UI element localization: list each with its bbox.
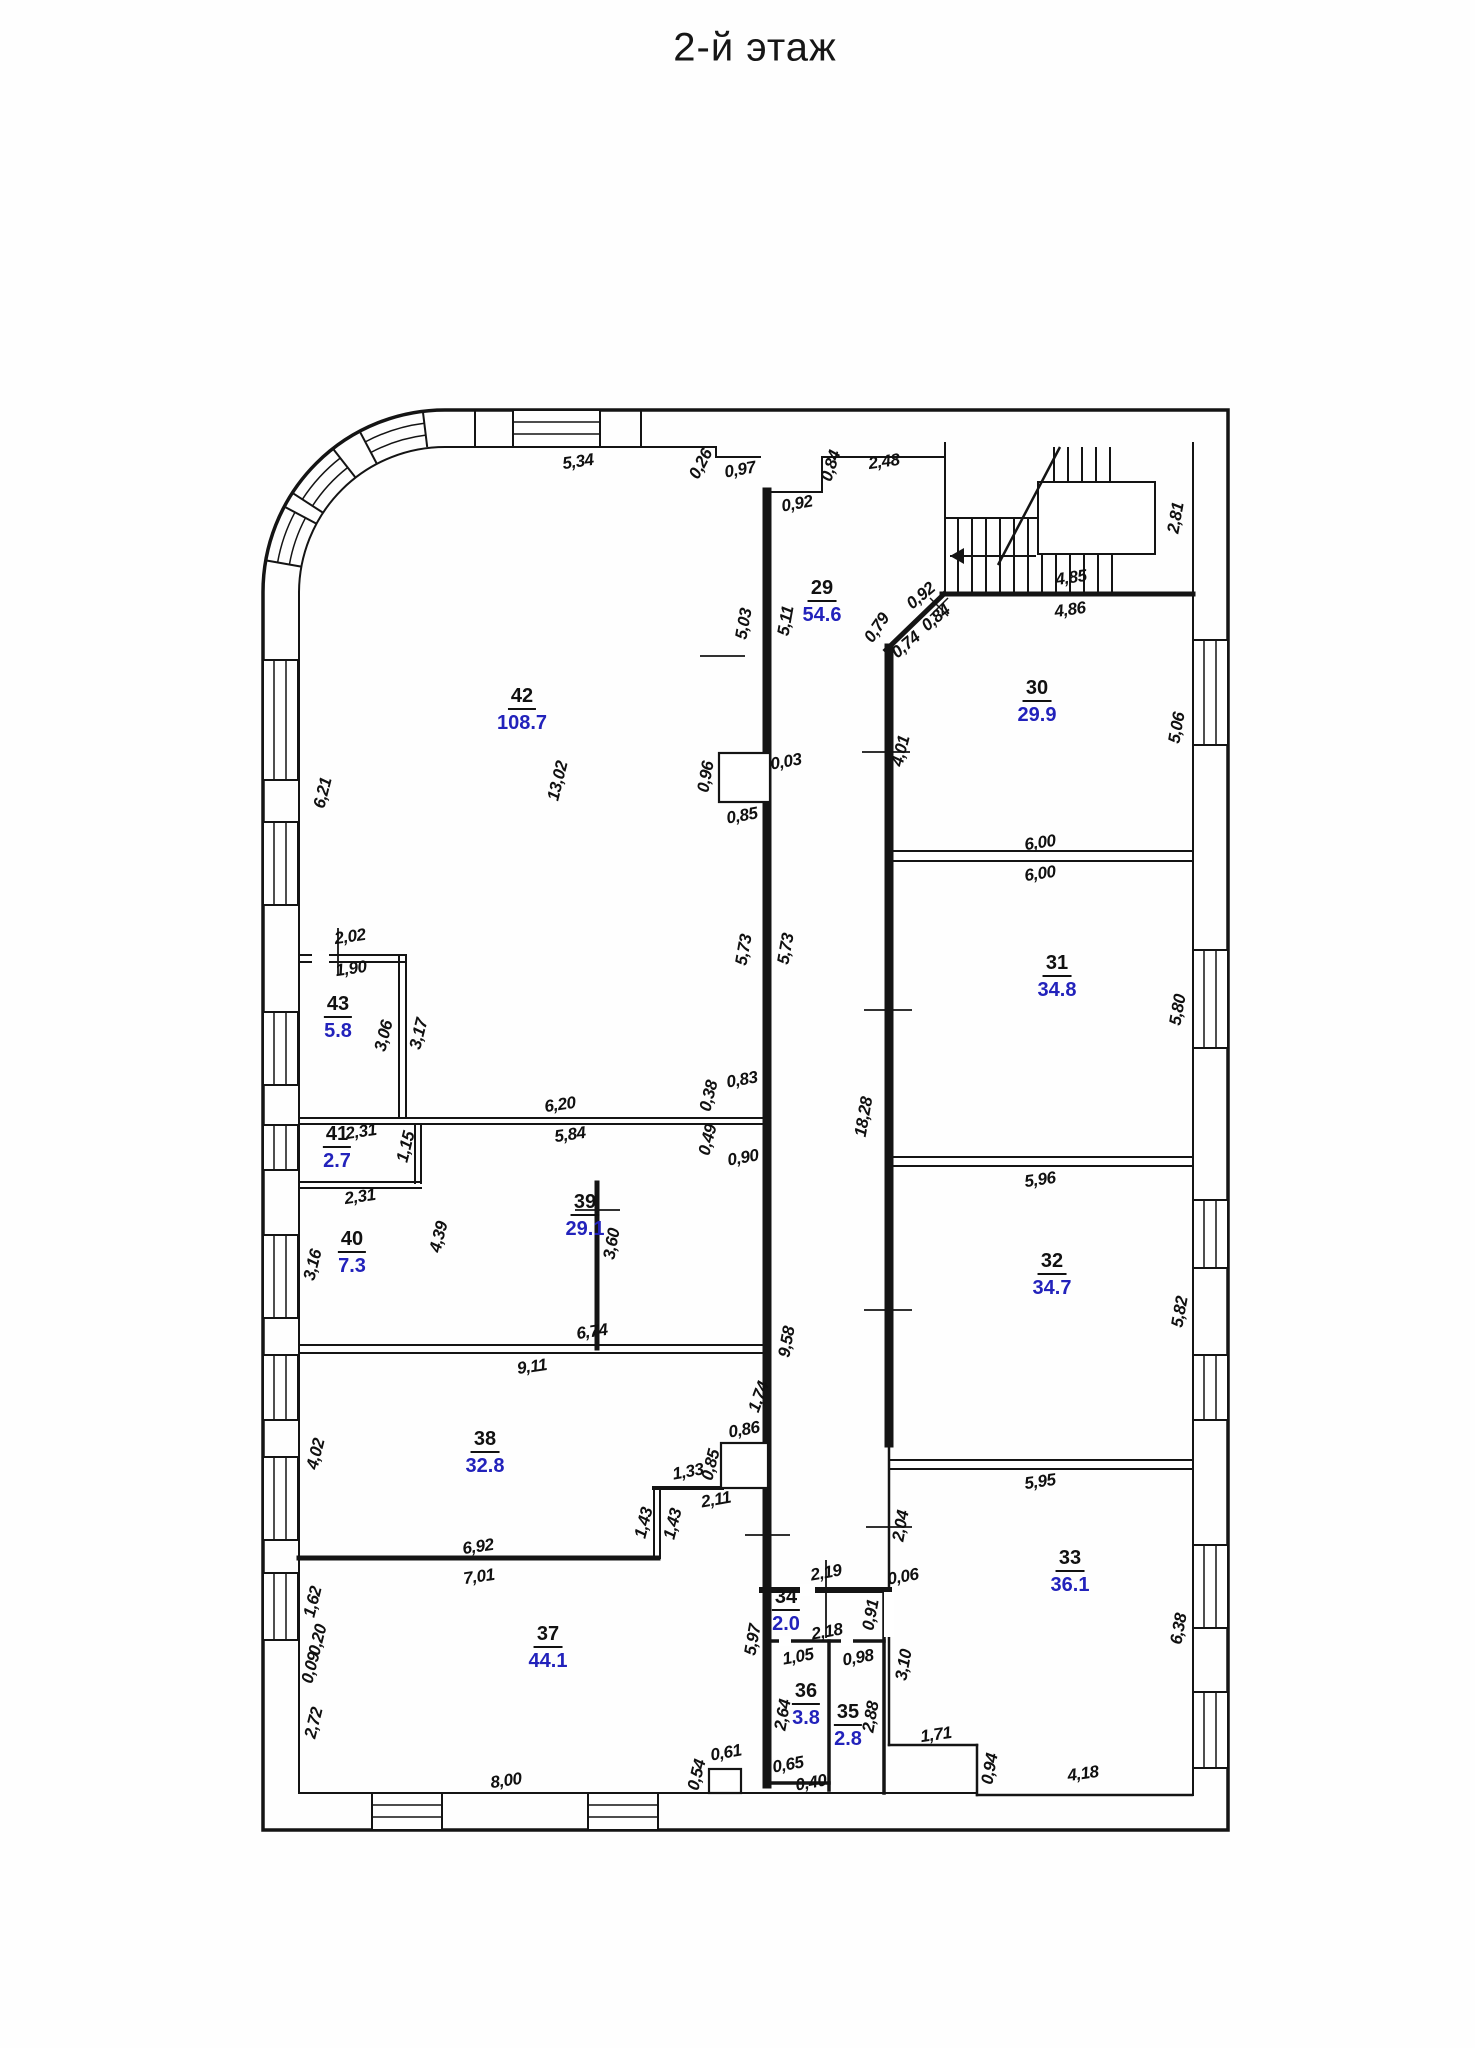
room-label: 42108.7 (497, 685, 547, 735)
room-number: 29 (808, 577, 836, 602)
dimension-label: 1,33 (671, 1459, 705, 1484)
dimension-label: 2,48 (867, 450, 901, 474)
dimension-label: 1,90 (334, 957, 368, 981)
dimension-label: 0,09 (298, 1650, 325, 1685)
room-area: 2.7 (323, 1150, 351, 1173)
room-area: 29.1 (566, 1218, 605, 1241)
room-area: 5.8 (324, 1020, 352, 1043)
dimension-label: 0,97 (723, 457, 757, 482)
dimension-label: 0,84 (817, 448, 846, 484)
room-label: 3336.1 (1051, 1547, 1090, 1597)
dimension-label: 9,58 (774, 1325, 799, 1359)
dimension-label: 0,61 (709, 1740, 743, 1765)
dimension-label: 6,38 (1166, 1612, 1191, 1646)
dimension-label: 1,15 (393, 1129, 420, 1164)
room-label: 3744.1 (529, 1623, 568, 1673)
dimension-label: 0,49 (695, 1122, 722, 1157)
dimension-label: 2,72 (301, 1705, 328, 1740)
room-number: 41 (323, 1123, 351, 1148)
dimension-label: 1,74 (744, 1379, 773, 1415)
room-label: 3832.8 (466, 1428, 505, 1478)
dimension-label: 6,00 (1023, 831, 1057, 855)
dimension-label: 5,73 (773, 932, 798, 966)
room-label: 435.8 (324, 993, 352, 1043)
dimension-label: 6,00 (1023, 862, 1057, 886)
dimension-label: 7,01 (462, 1565, 496, 1589)
room-area: 34.8 (1038, 979, 1077, 1002)
room-number: 36 (792, 1680, 820, 1705)
room-number: 34 (772, 1586, 800, 1611)
room-label: 3929.1 (566, 1191, 605, 1241)
room-label: 2954.6 (803, 577, 842, 627)
plan-labels: 5,340,260,970,920,842,480,920,790,740,84… (0, 0, 1475, 2048)
dimension-label: 5,84 (553, 1123, 587, 1147)
dimension-label: 4,18 (1066, 1762, 1100, 1786)
drawing-sheet: 2-й этаж (0, 0, 1475, 2048)
dimension-label: 2,11 (700, 1488, 733, 1513)
dimension-label: 0,03 (769, 749, 803, 774)
dimension-label: 1,43 (660, 1506, 687, 1541)
dimension-label: 18,28 (851, 1096, 878, 1139)
dimension-label: 2,81 (1163, 501, 1188, 535)
dimension-label: 0,83 (725, 1067, 759, 1092)
dimension-label: 6,92 (461, 1535, 495, 1559)
dimension-label: 0,26 (685, 446, 717, 483)
dimension-label: 5,06 (1164, 711, 1189, 745)
room-label: 407.3 (338, 1228, 366, 1278)
dimension-label: 5,11 (774, 605, 799, 638)
dimension-label: 2,02 (333, 925, 367, 949)
dimension-label: 3,10 (891, 1648, 916, 1682)
room-area: 108.7 (497, 712, 547, 735)
dimension-label: 4,86 (1053, 598, 1087, 622)
dimension-label: 0,54 (684, 1757, 711, 1792)
dimension-label: 5,03 (731, 607, 756, 641)
dimension-label: 4,39 (426, 1219, 453, 1254)
room-number: 43 (324, 993, 352, 1018)
dimension-label: 4,85 (1054, 566, 1088, 590)
room-label: 3029.9 (1018, 677, 1057, 727)
dimension-label: 2,31 (343, 1185, 377, 1209)
dimension-label: 3,16 (300, 1247, 327, 1282)
room-label: 342.0 (772, 1586, 800, 1636)
dimension-label: 0,06 (886, 1564, 920, 1589)
dimension-label: 2,88 (858, 1700, 883, 1734)
dimension-label: 0,38 (696, 1078, 723, 1113)
dimension-label: 0,91 (858, 1598, 883, 1632)
dimension-label: 4,01 (888, 733, 915, 768)
room-area: 34.7 (1033, 1277, 1072, 1300)
dimension-label: 0,90 (726, 1145, 760, 1170)
dimension-label: 6,21 (310, 775, 337, 810)
room-number: 39 (571, 1191, 599, 1216)
dimension-label: 13,02 (543, 759, 572, 803)
room-number: 35 (834, 1701, 862, 1726)
dimension-label: 6,74 (575, 1320, 609, 1344)
room-label: 352.8 (834, 1701, 862, 1751)
dimension-label: 0,86 (727, 1417, 761, 1442)
room-area: 2.0 (772, 1613, 800, 1636)
room-label: 412.7 (323, 1123, 351, 1173)
dimension-label: 5,34 (561, 450, 595, 474)
room-number: 37 (534, 1623, 562, 1648)
room-label: 363.8 (792, 1680, 820, 1730)
dimension-label: 0,79 (860, 610, 894, 647)
room-number: 33 (1056, 1547, 1084, 1572)
dimension-label: 1,05 (781, 1644, 815, 1669)
dimension-label: 1,62 (300, 1584, 327, 1619)
dimension-label: 8,00 (489, 1769, 523, 1793)
dimension-label: 5,82 (1167, 1295, 1192, 1329)
room-area: 2.8 (834, 1728, 862, 1751)
dimension-label: 0,98 (841, 1645, 875, 1670)
dimension-label: 5,96 (1023, 1168, 1057, 1192)
dimension-label: 5,73 (731, 933, 756, 967)
room-number: 38 (471, 1428, 499, 1453)
dimension-label: 1,71 (919, 1723, 953, 1747)
room-area: 7.3 (338, 1255, 366, 1278)
room-area: 54.6 (803, 604, 842, 627)
dimension-label: 3,06 (371, 1018, 398, 1053)
room-number: 31 (1043, 952, 1071, 977)
dimension-label: 2,18 (810, 1619, 844, 1644)
dimension-label: 0,92 (780, 491, 814, 516)
room-area: 3.8 (792, 1707, 820, 1730)
room-number: 32 (1038, 1250, 1066, 1275)
dimension-label: 0,85 (725, 803, 759, 828)
room-label: 3234.7 (1033, 1250, 1072, 1300)
room-number: 42 (508, 685, 536, 710)
dimension-label: 4,02 (303, 1436, 330, 1471)
dimension-label: 0,94 (977, 1752, 1002, 1786)
dimension-label: 5,80 (1165, 993, 1190, 1027)
dimension-label: 0,96 (693, 760, 718, 794)
room-area: 44.1 (529, 1650, 568, 1673)
room-area: 36.1 (1051, 1574, 1090, 1597)
dimension-label: 0,74 (888, 627, 925, 662)
dimension-label: 3,17 (406, 1016, 433, 1051)
dimension-label: 2,19 (809, 1560, 843, 1585)
room-area: 32.8 (466, 1455, 505, 1478)
dimension-label: 5,97 (740, 1623, 765, 1657)
room-label: 3134.8 (1038, 952, 1077, 1002)
room-number: 30 (1023, 677, 1051, 702)
dimension-label: 5,95 (1023, 1470, 1057, 1494)
dimension-label: 2,04 (888, 1509, 913, 1543)
room-area: 29.9 (1018, 704, 1057, 727)
dimension-label: 9,11 (516, 1355, 548, 1379)
dimension-label: 0,40 (794, 1770, 828, 1795)
dimension-label: 1,43 (631, 1505, 658, 1540)
dimension-label: 6,20 (543, 1093, 577, 1117)
room-number: 40 (338, 1228, 366, 1253)
